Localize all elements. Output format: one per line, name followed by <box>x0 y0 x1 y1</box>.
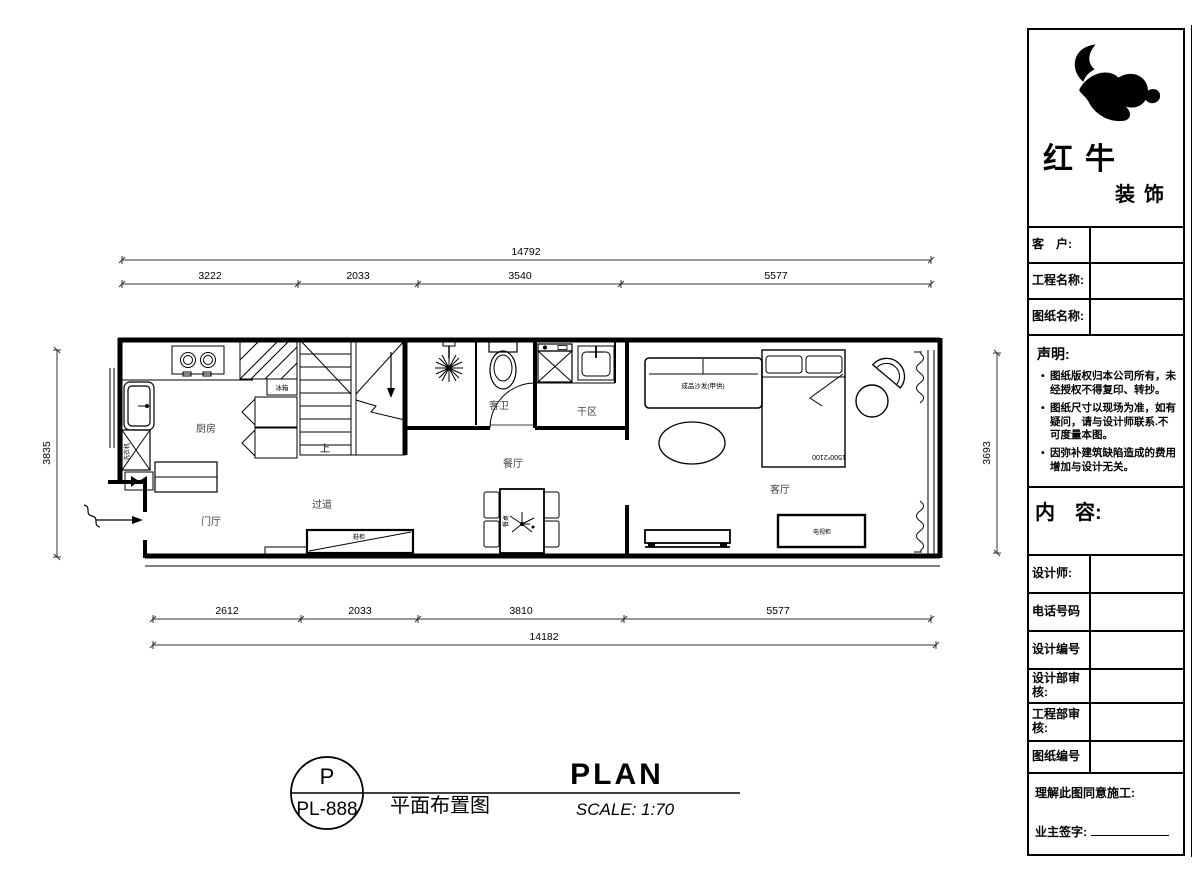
statement-list: 图纸版权归本公司所有，未经授权不得复印、转抄。 图纸尺寸以现场为准，如有疑问，请… <box>1037 370 1177 475</box>
statement-title: 声明: <box>1037 344 1177 364</box>
content-label: 内 容: <box>1035 502 1102 524</box>
drawing-name-value-cell <box>1091 300 1183 334</box>
project-row: 工程名称: <box>1029 264 1183 300</box>
brand-name: 红牛 <box>1029 144 1183 176</box>
tv-cabinet-label: 电视柜 <box>813 528 831 536</box>
drawing-no-label: 图纸编号 <box>1029 742 1091 772</box>
statement-box: 声明: 图纸版权归本公司所有，未经授权不得复印、转抄。 图纸尺寸以现场为准，如有… <box>1029 336 1183 488</box>
range-hood-icon <box>240 341 297 379</box>
dimension-labels: 14792 3222 2033 3540 5577 2612 2033 3810… <box>41 246 993 643</box>
drawing-no-row: 图纸编号 <box>1029 742 1183 774</box>
engineering-review-label: 工程部审核: <box>1029 704 1091 740</box>
sofa-label: 成品沙发(甲供) <box>681 381 724 390</box>
signature-underline <box>1091 823 1169 836</box>
stove-icon <box>172 346 224 376</box>
content-box: 内 容: <box>1029 488 1183 556</box>
shower-icon <box>435 340 463 382</box>
phone-value-cell <box>1091 594 1183 630</box>
design-review-label: 设计部审核: <box>1029 670 1091 702</box>
design-no-label: 设计编号 <box>1029 632 1091 668</box>
sheet-scale: SCALE: 1:70 <box>576 800 675 819</box>
kitchen-counter <box>155 462 217 492</box>
washer-label: 洗衣机 <box>123 443 131 461</box>
statement-item: 图纸版权归本公司所有，未经授权不得复印、转抄。 <box>1041 370 1177 398</box>
project-label: 工程名称: <box>1029 264 1091 298</box>
dim-top-seg-4: 5577 <box>764 270 788 282</box>
curtain-icon <box>914 352 924 552</box>
room-label-kitchen: 厨房 <box>196 422 216 435</box>
dim-top-seg-3: 3540 <box>508 270 532 282</box>
bed <box>762 350 845 467</box>
shoe-cabinet <box>307 530 413 553</box>
dim-top-seg-2: 2033 <box>346 270 370 282</box>
room-label-foyer: 门厅 <box>201 515 221 528</box>
toilet-icon <box>489 342 517 389</box>
signature-label: 业主签字: <box>1035 825 1087 839</box>
design-no-value-cell <box>1091 632 1183 668</box>
dining-table-label: 餐桌 <box>502 515 510 527</box>
statement-item: 因弥补建筑缺陷造成的费用增加与设计无关。 <box>1041 447 1177 475</box>
entry-arrow-icon <box>84 505 143 527</box>
fridge-icon <box>242 379 297 458</box>
designer-label: 设计师: <box>1029 556 1091 592</box>
signature-box: 理解此图同意施工: 业主签字: <box>1029 774 1183 854</box>
vanity-sink-icon <box>578 346 614 380</box>
dining-table <box>484 489 559 553</box>
sheet-title-en: PLAN <box>570 758 664 791</box>
rug-oval <box>659 422 725 464</box>
client-label: 客 户: <box>1029 228 1091 262</box>
room-label-dining: 餐厅 <box>503 457 523 470</box>
client-value-cell <box>1091 228 1183 262</box>
dim-top-seg-1: 3222 <box>198 270 222 282</box>
client-row: 客 户: <box>1029 228 1183 264</box>
engineering-review-value-cell <box>1091 704 1183 740</box>
kitchen-sink-icon <box>124 382 154 430</box>
dry-area-washer-icon <box>538 344 572 382</box>
shoe-cabinet-label: 鞋柜 <box>353 533 365 541</box>
phone-row: 电话号码 <box>1029 594 1183 632</box>
room-label-dry-area: 干区 <box>577 406 597 418</box>
dim-right-height: 3693 <box>981 441 993 465</box>
table-plant-icon <box>510 512 535 532</box>
drawing-sheet: 14792 3222 2033 3540 5577 2612 2033 3810… <box>0 0 1200 870</box>
side-table-icon <box>856 385 888 417</box>
drawing-no-value-cell <box>1091 742 1183 772</box>
dim-top-total: 14792 <box>511 246 540 258</box>
drawing-name-label: 图纸名称: <box>1029 300 1091 334</box>
room-label-hallway: 过道 <box>312 498 332 511</box>
sheet-badge-letter: P <box>320 764 335 789</box>
designer-value-cell <box>1091 556 1183 592</box>
agreement-label: 理解此图同意施工: <box>1035 784 1177 801</box>
stairs <box>300 340 405 455</box>
dim-left-height: 3835 <box>41 441 53 465</box>
statement-item: 图纸尺寸以现场为准，如有疑问，请与设计师联系.不可度量本图。 <box>1041 402 1177 444</box>
dim-bottom-seg-2: 2033 <box>348 605 372 617</box>
dim-bottom-seg-3: 3810 <box>509 605 533 617</box>
design-review-row: 设计部审核: <box>1029 670 1183 704</box>
bed-size-label: 1500*2100 <box>812 453 846 460</box>
fridge-label: 冰箱 <box>276 383 290 392</box>
owner-signature-line: 业主签字: <box>1035 823 1177 840</box>
drawing-name-row: 图纸名称: <box>1029 300 1183 336</box>
design-no-row: 设计编号 <box>1029 632 1183 670</box>
designer-row: 设计师: <box>1029 556 1183 594</box>
floor-plan: 14792 3222 2033 3540 5577 2612 2033 3810… <box>0 0 1020 870</box>
dim-bottom-seg-4: 5577 <box>766 605 790 617</box>
bull-logo-icon <box>1044 36 1168 144</box>
interior-walls <box>122 338 627 556</box>
dim-bottom-total: 14182 <box>529 631 558 643</box>
dimension-lines <box>53 256 1001 649</box>
title-block-panel: 红牛 装饰 客 户: 工程名称: 图纸名称: 声明: 图纸版权归本公司所有，未经… <box>1027 28 1185 856</box>
brand-subname: 装饰 <box>1029 178 1183 207</box>
room-label-guest-bath: 客卫 <box>489 399 509 412</box>
tv-icon <box>645 530 730 547</box>
dim-bottom-seg-1: 2612 <box>215 605 239 617</box>
design-review-value-cell <box>1091 670 1183 702</box>
phone-label: 电话号码 <box>1029 594 1091 630</box>
armchair-icon <box>873 351 912 388</box>
sheet-border-line <box>1191 25 1192 857</box>
sheet-title-block: P PL-888 平面布置图 PLAN SCALE: 1:70 <box>291 757 740 829</box>
project-value-cell <box>1091 264 1183 298</box>
engineering-review-row: 工程部审核: <box>1029 704 1183 742</box>
room-label-living: 客厅 <box>770 483 790 496</box>
stairs-up-label: 上 <box>320 443 330 455</box>
sheet-title-cn: 平面布置图 <box>390 794 490 817</box>
sheet-badge-number: PL-888 <box>296 799 357 820</box>
logo-box: 红牛 装饰 <box>1029 30 1183 228</box>
